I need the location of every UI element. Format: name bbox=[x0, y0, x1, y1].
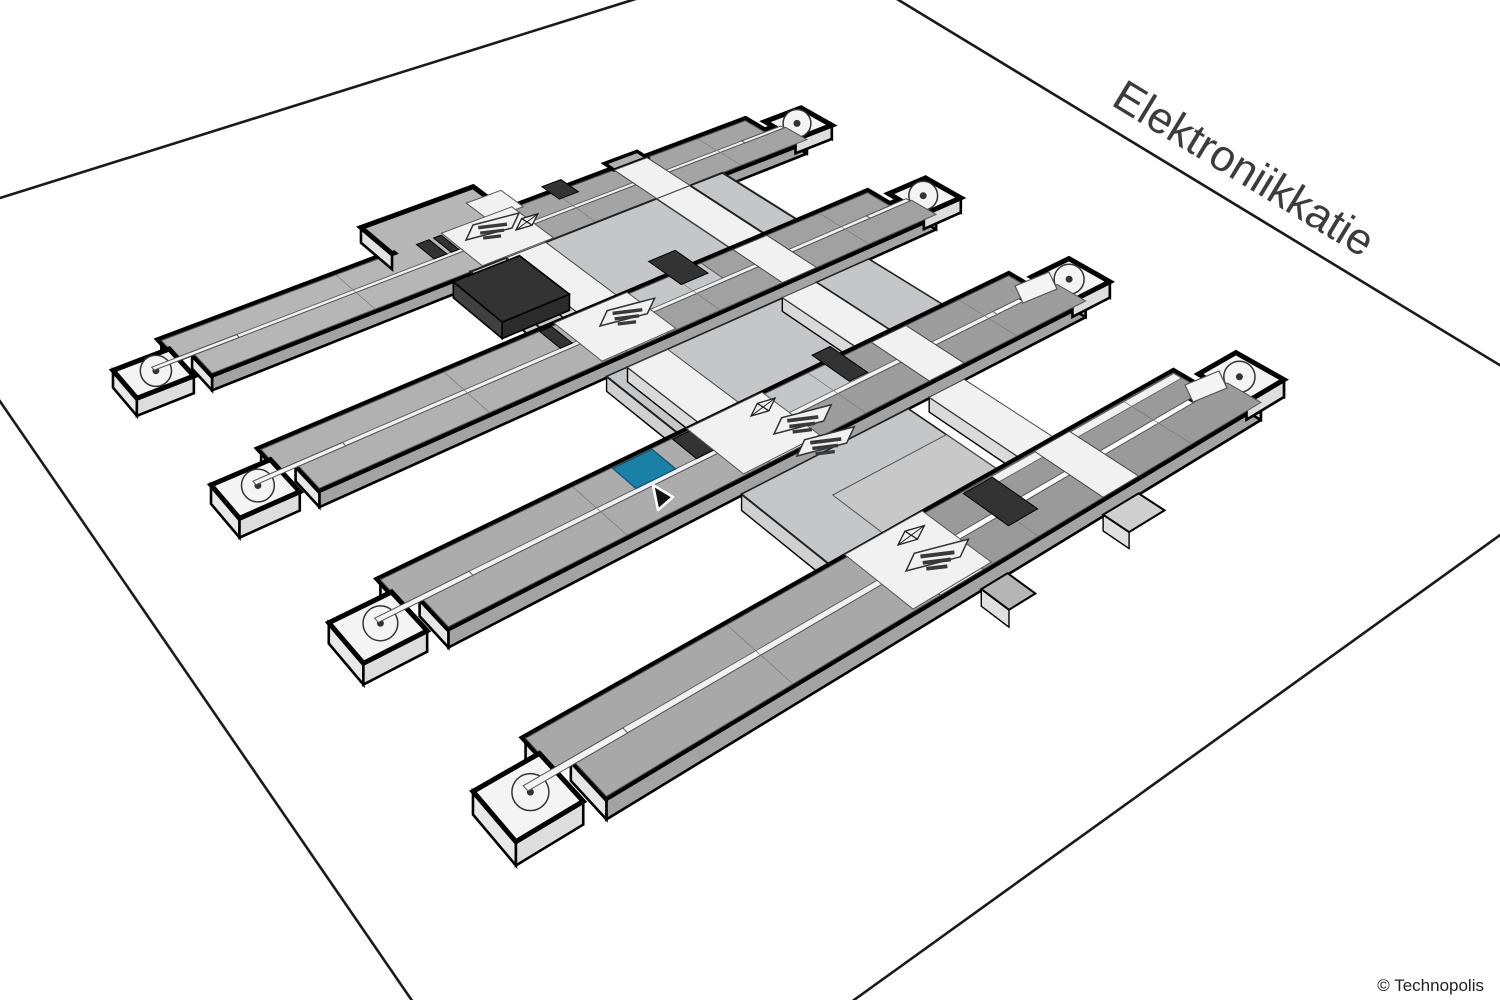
svg-text:© Technopolis: © Technopolis bbox=[1377, 976, 1484, 995]
